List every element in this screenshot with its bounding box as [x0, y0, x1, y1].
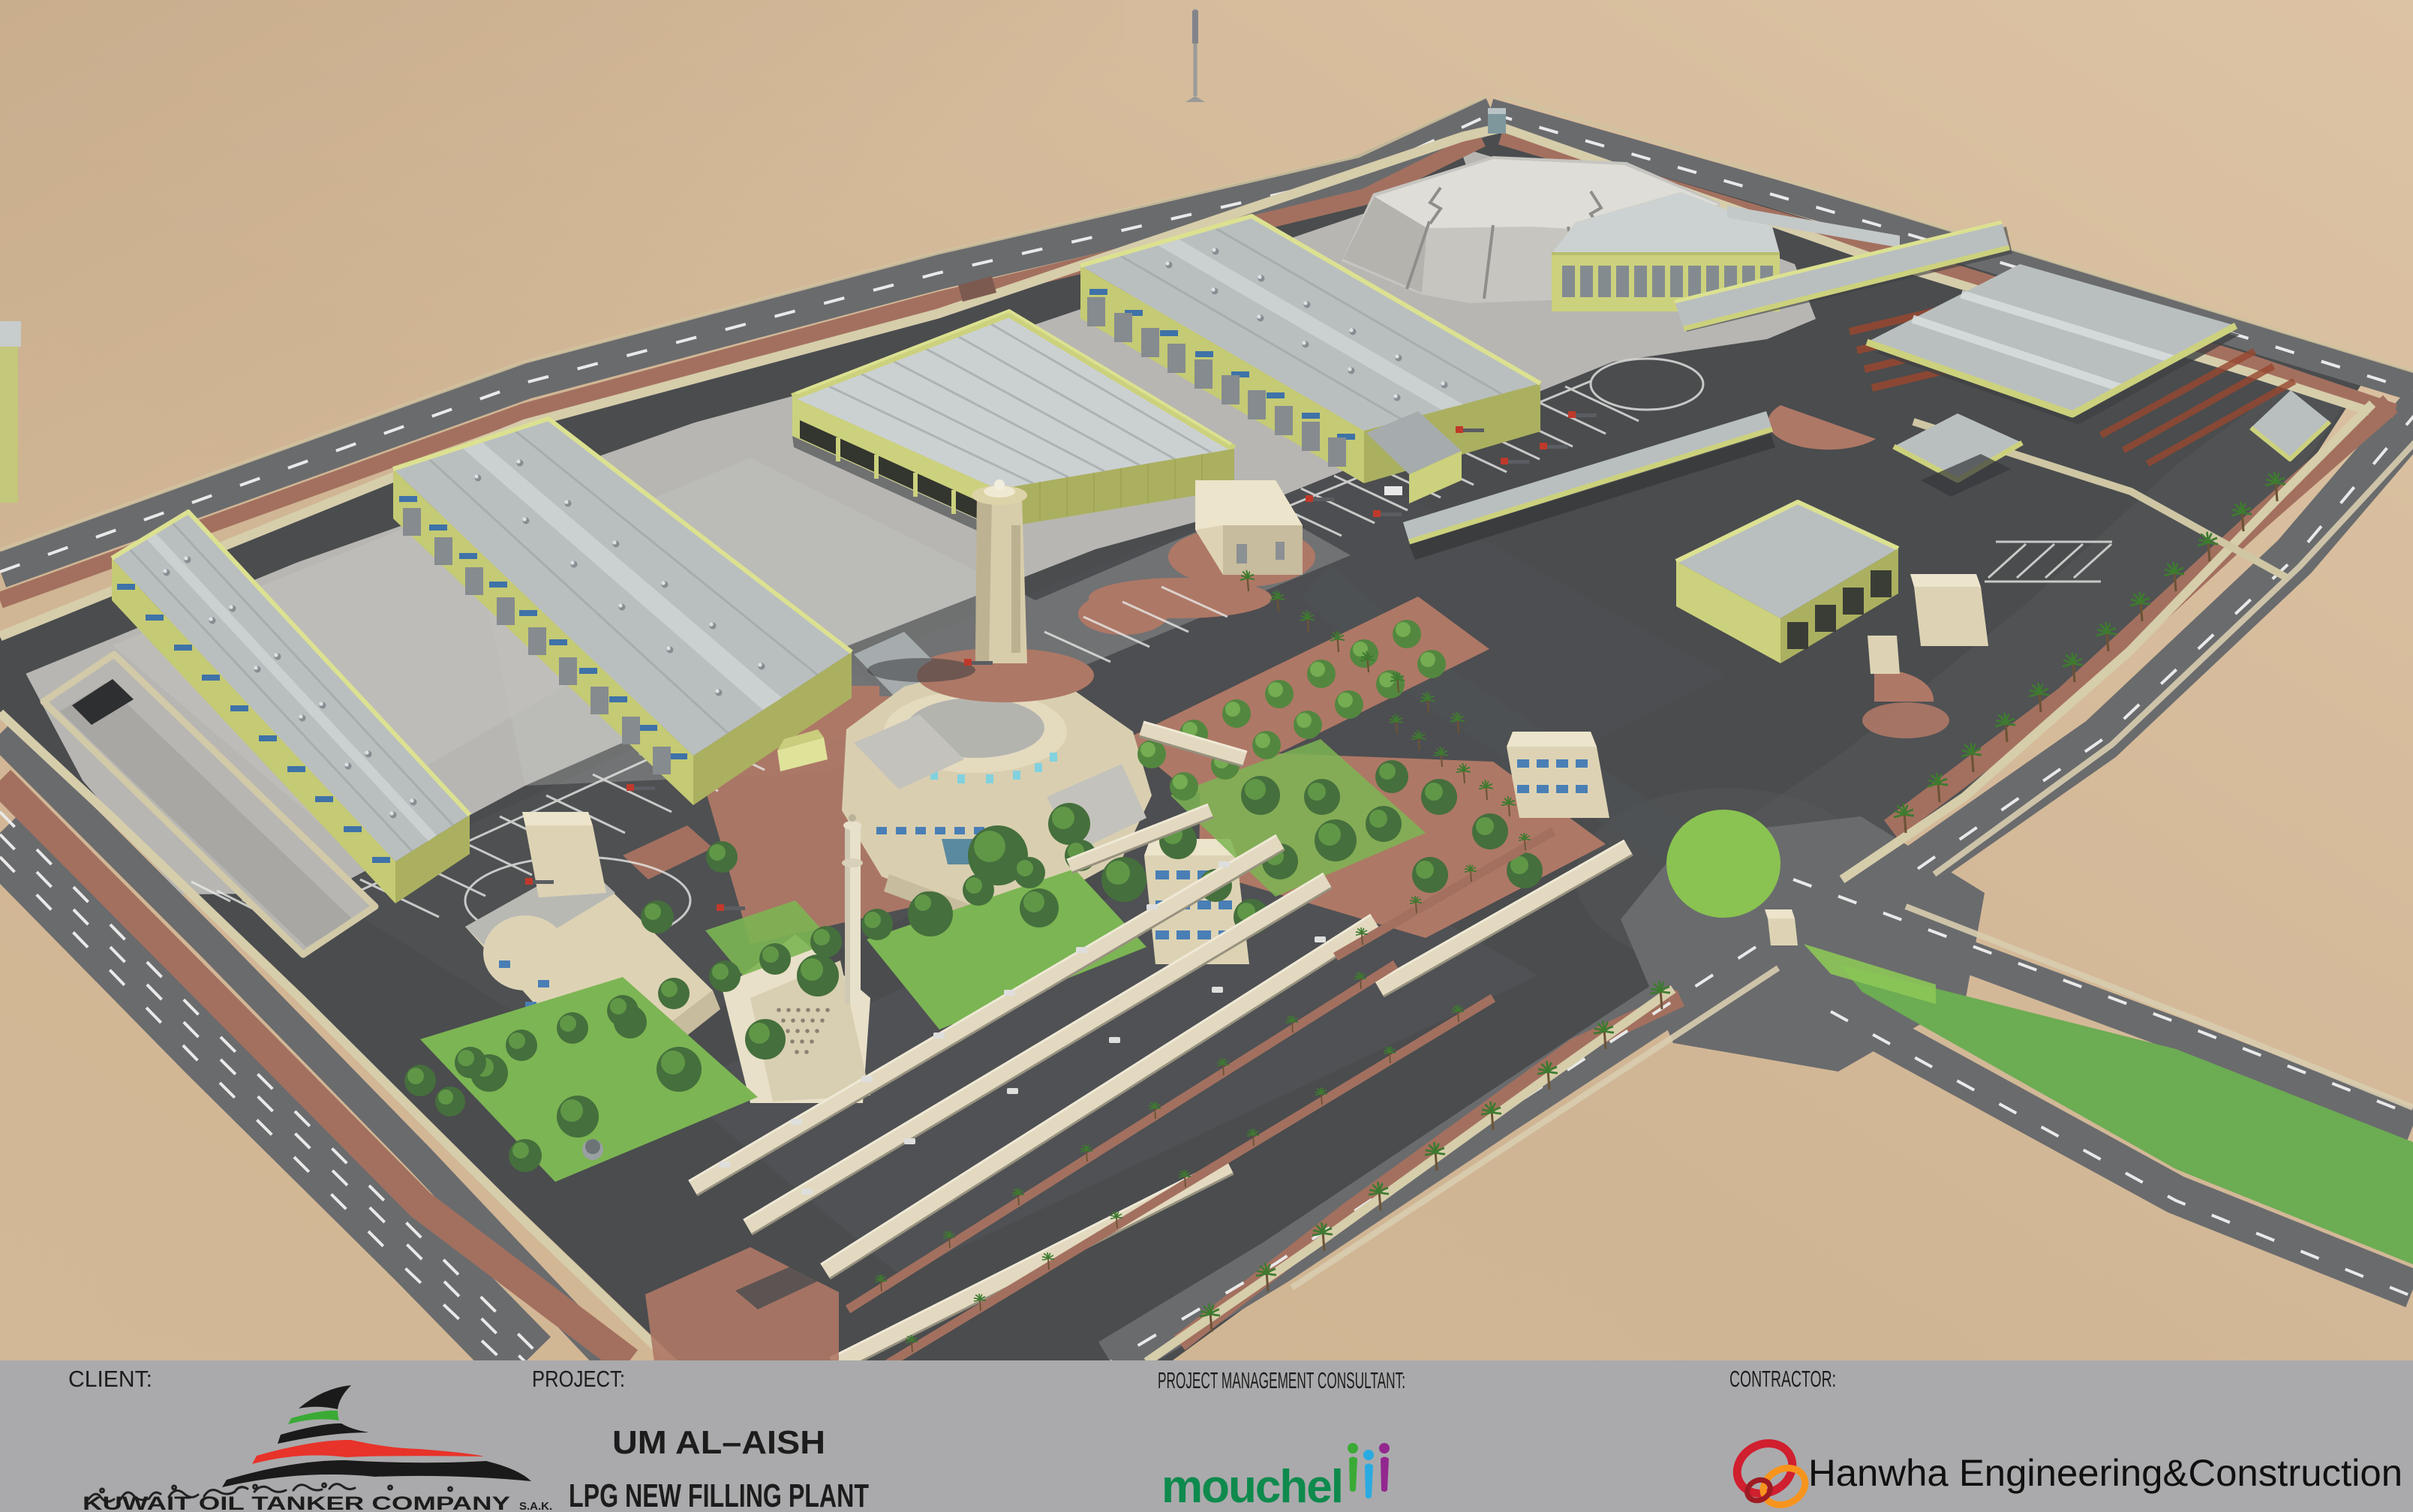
svg-text:CLIENT:: CLIENT: [68, 1366, 152, 1392]
svg-text:PROJECT:: PROJECT: [532, 1366, 625, 1392]
svg-text:mouchel: mouchel [1161, 1461, 1342, 1512]
svg-text:PROJECT MANAGEMENT CONSULTANT:: PROJECT MANAGEMENT CONSULTANT: [1158, 1367, 1405, 1393]
svg-text:S.A.K.: S.A.K. [519, 1500, 552, 1512]
svg-text:CONTRACTOR:: CONTRACTOR: [1729, 1366, 1836, 1392]
svg-text:UM AL–AISH: UM AL–AISH [612, 1424, 825, 1461]
svg-text:LPG NEW FILLING PLANT: LPG NEW FILLING PLANT [569, 1477, 869, 1512]
svg-text:KUWAIT OIL TANKER COMPANY: KUWAIT OIL TANKER COMPANY [83, 1493, 510, 1512]
svg-text:Hanwha Engineering&Constructio: Hanwha Engineering&Construction [1808, 1452, 2402, 1494]
